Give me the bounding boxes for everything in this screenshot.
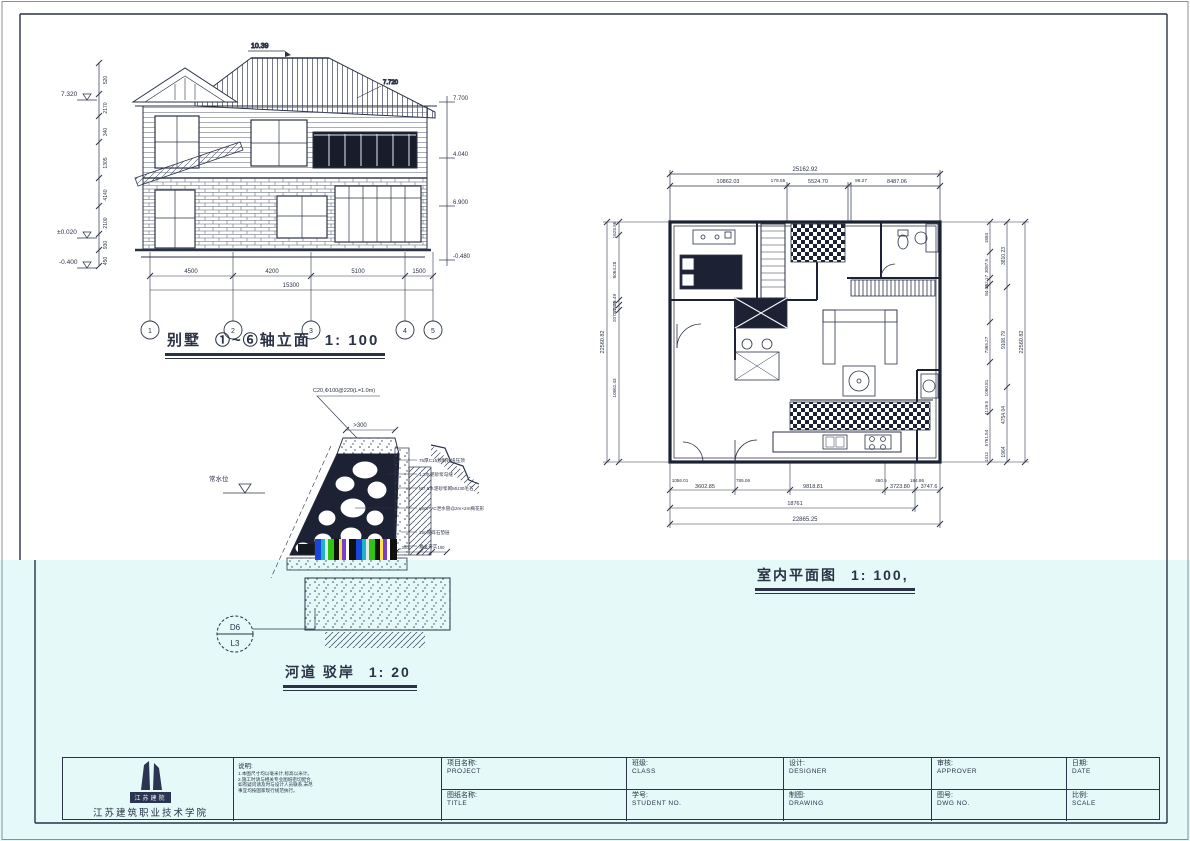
detail-bubble-bottom-label: L3: [231, 639, 240, 648]
dim-label: 5100: [351, 269, 365, 275]
dim-label: 1964: [1001, 446, 1007, 457]
field-class: 班级: CLASS: [626, 758, 783, 789]
field-scale: 比例: SCALE: [1066, 789, 1159, 821]
field-class-en: CLASS: [632, 768, 783, 776]
field-dwg-en: DWG NO.: [937, 800, 1066, 808]
elevation-left-dim-labels: 520 2170 340 1305 4140 2100 930 450: [103, 76, 109, 266]
field-approver: 审核: APPROVER: [931, 758, 1066, 789]
floorplan-title: 室内平面图1: 100,: [755, 565, 915, 591]
elevation-bottom-dims: [141, 252, 442, 339]
axis-bubble-label: 4: [403, 328, 407, 335]
elevation-left-dims: [77, 60, 102, 269]
dim-label: 84.05: [984, 284, 989, 296]
field-scale-cn: 比例:: [1072, 792, 1159, 800]
dim-label: 8064.28: [612, 261, 617, 278]
revetment-detail-drawing: C20,Φ100@220(L=1.0m) >300 常水位: [205, 382, 505, 672]
elevation-right-dims: [439, 96, 455, 266]
field-title-en: TITLE: [447, 800, 626, 808]
plan-left-dim-labels: 1628.96 8064.28 205.49 176.26 207.52 108…: [612, 221, 617, 397]
dim-label: 1305: [103, 157, 109, 168]
dim-label: 7365.27: [984, 336, 989, 353]
dim-label: 3087.5: [984, 259, 989, 273]
detail-title-scale: 1: 20: [369, 664, 411, 680]
level-label: 6.900: [453, 200, 469, 206]
dim-label: 785.06: [736, 478, 750, 483]
dim-label: 3747.6: [921, 484, 938, 490]
field-designer-en: DESIGNER: [789, 768, 931, 776]
field-project-en: PROJECT: [447, 768, 626, 776]
detail-title-name: 河道 驳岸: [285, 664, 355, 680]
callout-label: 1:2水泥砂浆勾缝: [419, 471, 453, 478]
organization-name: 江苏建筑职业技术学院: [93, 805, 208, 819]
render-glitch-artifact: [315, 539, 397, 560]
dim-label: 100: [438, 545, 446, 550]
elevation-bottom-dim-labels: 4500 4200 5100 1500 15300 1 2 3 4 5: [148, 269, 435, 335]
dim-label: 4129.5: [984, 401, 989, 415]
field-drawing-cn: 制图:: [789, 792, 931, 800]
field-student-cn: 学号:: [632, 792, 783, 800]
dim-label: 7.720: [383, 80, 399, 86]
dim-label: 4140: [103, 189, 109, 200]
dim-label: 3723.80: [890, 484, 910, 490]
dim-label: 15300: [283, 283, 300, 289]
field-designer-cn: 设计:: [789, 760, 931, 768]
dim-label: 184.86: [910, 478, 924, 483]
field-title-cn: 图纸名称:: [447, 792, 626, 800]
plan-bottom-dim-labels: 1056.01 785.06 460.5 184.86 3602.85 9818…: [672, 478, 938, 523]
floorplan-title-name: 室内平面图: [757, 567, 837, 583]
dim-label: 2100: [103, 217, 109, 228]
dim-label: >300: [353, 423, 367, 429]
dim-label: 22865.25: [792, 517, 818, 523]
field-title: 图纸名称: TITLE: [441, 789, 626, 821]
field-date: 日期: DATE: [1066, 758, 1159, 789]
dim-label: 340: [103, 128, 109, 137]
dim-label: 1060.81: [984, 379, 989, 396]
dim-label: 520: [103, 76, 109, 85]
level-label: 4.040: [453, 152, 469, 158]
dim-label: 18761: [787, 501, 802, 507]
dim-label: 4200: [265, 269, 279, 275]
drawing-sheet: 10.39 7.720: [0, 0, 1190, 841]
title-block-notes: 说明: 1.本图尺寸均以毫米计,标高以米计。 2.施工时请与相关专业图纸密切配合…: [233, 758, 441, 821]
elevation-title: 别墅①~⑥轴立面1: 100: [165, 329, 385, 356]
field-project-cn: 项目名称:: [447, 760, 626, 768]
field-approver-cn: 审核:: [937, 760, 1066, 768]
plan-top-dims: [667, 170, 943, 222]
dim-label: 98.27: [855, 178, 867, 184]
elevation-drawing: 10.39 7.720: [55, 38, 485, 368]
field-dwg-no: 图号: DWG NO.: [931, 789, 1066, 821]
field-scale-en: SCALE: [1072, 800, 1159, 808]
water-level-symbol: [223, 484, 265, 493]
field-date-cn: 日期:: [1072, 760, 1159, 768]
dim-label: 5524.70: [808, 179, 828, 185]
dim-label: 22560.82: [1019, 331, 1025, 354]
dim-label: 9818.81: [803, 484, 823, 490]
water-level-label: 常水位: [209, 474, 229, 483]
elevation-title-scale: 1: 100: [325, 332, 380, 349]
floorplan-drawing: 25162.92 10862.03 179.55 5524.70 98.27 8…: [585, 160, 1065, 560]
field-student: 学号: STUDENT NO.: [626, 789, 783, 821]
dim-label: 207.52: [612, 308, 617, 322]
dim-label: 930: [103, 241, 109, 250]
level-label: -0.400: [59, 259, 78, 266]
plan-left-dims: [603, 219, 670, 465]
dim-label: 2170: [103, 102, 109, 113]
field-dwg-cn: 图号:: [937, 792, 1066, 800]
axis-bubble-label: 1: [148, 328, 152, 335]
dim-label: 50: [423, 545, 428, 550]
detail-bubble-top-label: D6: [230, 623, 241, 632]
dim-label: 3810.23: [1001, 247, 1007, 265]
callout-label: 150厚碎石垫层: [419, 529, 450, 536]
dim-label: 300: [402, 545, 410, 550]
render-glitch-artifact: [298, 544, 314, 554]
field-date-en: DATE: [1072, 768, 1159, 776]
elevation-title-name: 别墅: [167, 332, 201, 349]
dim-label: 10.39: [251, 43, 269, 50]
field-drawing: 制图: DRAWING: [783, 789, 931, 821]
dim-label: 4754.04: [1001, 406, 1007, 424]
dim-label: 450: [103, 257, 109, 266]
field-drawing-en: DRAWING: [789, 800, 931, 808]
field-approver-en: APPROVER: [937, 768, 1066, 776]
field-designer: 设计: DESIGNER: [783, 758, 931, 789]
title-block-logo-cell: 江苏建院 江苏建筑职业技术学院: [63, 758, 233, 821]
dim-label: 1500: [412, 269, 426, 275]
dim-label: 10862.03: [717, 179, 740, 185]
dim-label: 10862.43: [612, 378, 617, 398]
logo-banner: 江苏建院: [130, 792, 170, 803]
dim-label: 1412: [984, 451, 989, 462]
note-line: 事宜均按国家现行规范执行。: [238, 788, 438, 794]
callout-label: φ80PVC泄水管@2m×2m梅花形: [419, 505, 485, 512]
callout-label: 75厚C15预制砼块压顶: [419, 457, 465, 464]
dim-label: 1056.01: [672, 478, 689, 483]
dim-label: 5761.54: [984, 429, 989, 446]
field-class-cn: 班级:: [632, 760, 783, 768]
elevation-title-axes: ①~⑥轴立面: [215, 332, 311, 349]
axis-bubble-label: 5: [431, 328, 435, 335]
dim-label: 9108.79: [1001, 331, 1007, 349]
level-label: 7.320: [61, 91, 78, 98]
field-student-en: STUDENT NO.: [632, 800, 783, 808]
dim-label: 8487.06: [887, 179, 907, 185]
dim-label: 1628.96: [612, 221, 617, 238]
dim-label: 4500: [184, 269, 198, 275]
level-label: 7.700: [453, 96, 469, 102]
elevation-geometry: 10.39 7.720: [133, 43, 437, 257]
dim-label: 22560.82: [600, 331, 606, 354]
dim-label: 3602.85: [695, 484, 715, 490]
dim-label: 179.55: [771, 178, 786, 184]
dim-label: 460.5: [875, 478, 887, 483]
level-label: ±0.020: [57, 229, 77, 236]
floorplan-title-scale: 1: 100,: [851, 567, 909, 583]
plan-furniture: [677, 224, 938, 462]
dim-label: 25162.92: [792, 167, 818, 173]
dim-label: 1884: [984, 232, 989, 243]
callout-label: C20,Φ100@220(L=1.0m): [313, 388, 375, 394]
level-label: -0.480: [453, 254, 471, 260]
title-block: 江苏建院 江苏建筑职业技术学院 项目名称: PROJECT 班级: CLASS …: [62, 757, 1160, 820]
field-project: 项目名称: PROJECT: [441, 758, 626, 789]
notes-title: 说明:: [238, 760, 438, 770]
detail-footing-dims: 300 50 100: [402, 545, 446, 550]
school-logo-icon: [129, 759, 173, 791]
plan-top-dim-labels: 25162.92 10862.03 179.55 5524.70 98.27 8…: [717, 167, 907, 185]
callout-label: M7.5水泥砂浆砌MU30毛石: [419, 485, 474, 492]
detail-footing: [287, 549, 450, 648]
detail-title: 河道 驳岸1: 20: [283, 662, 417, 688]
